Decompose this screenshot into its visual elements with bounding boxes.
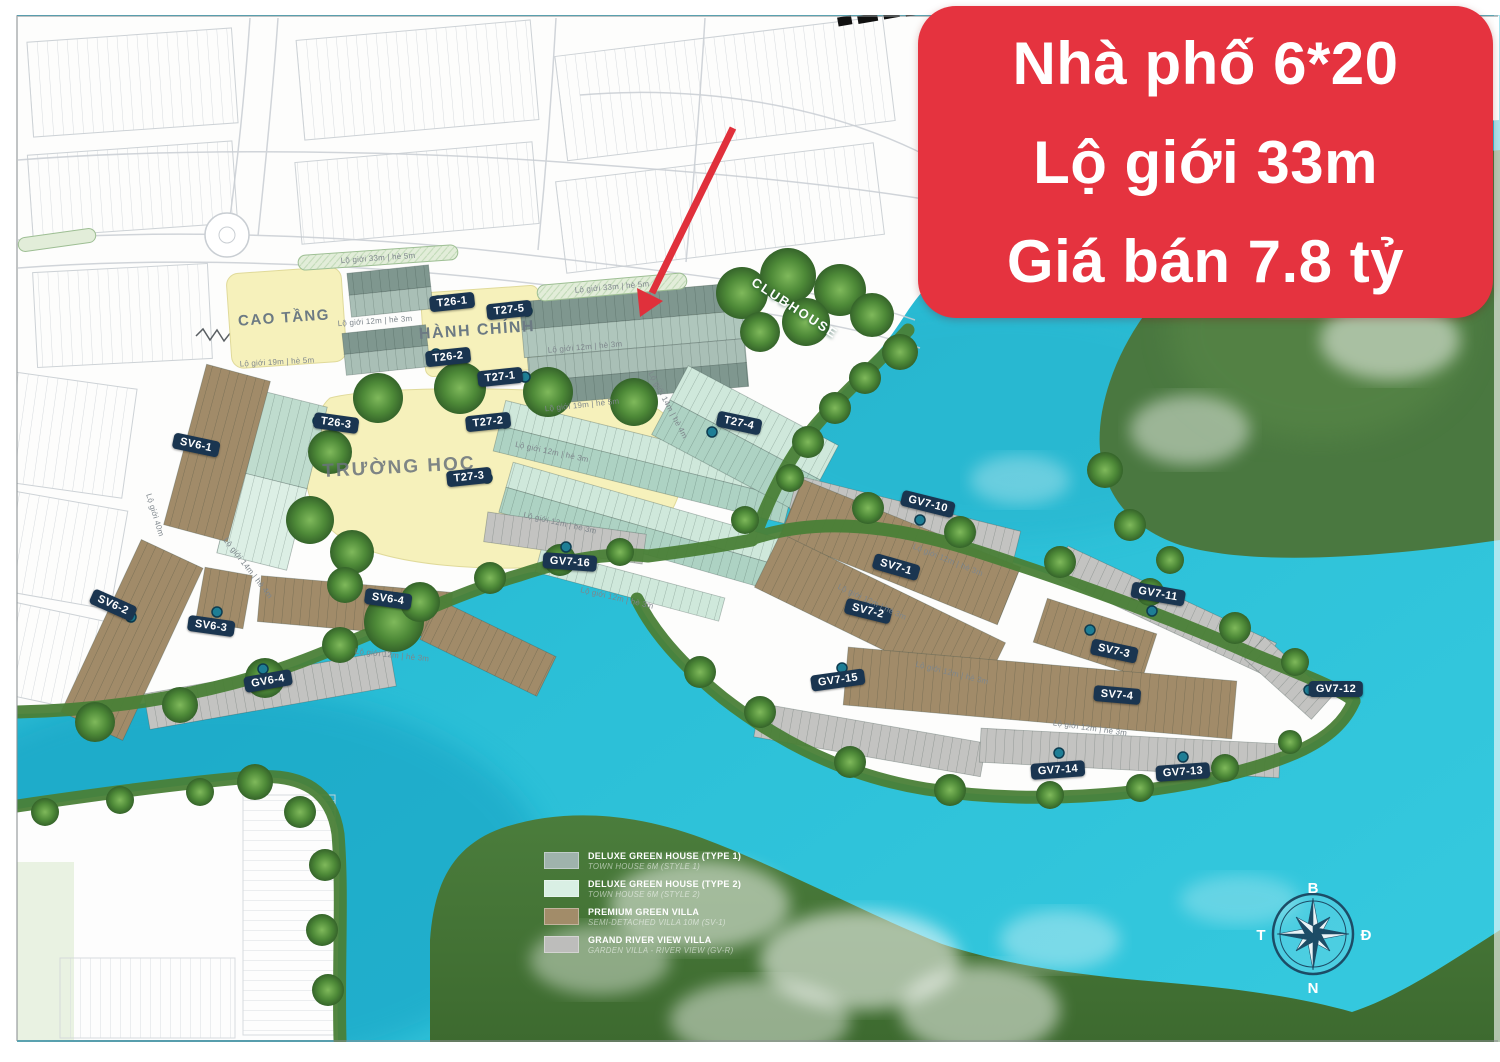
banner-line-house-size: Nhà phố 6*20: [918, 14, 1493, 113]
tree: [1126, 774, 1154, 802]
legend-title: GRAND RIVER VIEW VILLA: [588, 935, 712, 945]
tree: [1219, 612, 1251, 644]
tree: [744, 696, 776, 728]
tree: [850, 293, 894, 337]
label-marker-dot: [707, 427, 717, 437]
tree: [474, 562, 506, 594]
legend-swatch-type2: [544, 880, 579, 897]
compass-east-label: Đ: [1361, 927, 1372, 944]
promo-banner: Nhà phố 6*20 Lộ giới 33m Giá bán 7.8 tỷ: [918, 6, 1493, 318]
tree: [309, 849, 341, 881]
tree: [944, 516, 976, 548]
masterplan-image: B Đ N T CAO TẦNG HÀNH CHÍNH TRƯỜNG HỌC C…: [0, 0, 1500, 1062]
tree: [434, 362, 486, 414]
tree: [327, 567, 363, 603]
tree: [606, 538, 634, 566]
tree: [353, 373, 403, 423]
legend-swatch-type1: [544, 852, 579, 869]
compass-north-label: B: [1308, 880, 1319, 897]
tree: [819, 392, 851, 424]
tree: [31, 798, 59, 826]
tree: [286, 496, 334, 544]
tree: [882, 334, 918, 370]
legend-title: DELUXE GREEN HOUSE (TYPE 1): [588, 851, 741, 861]
faded-block: [27, 28, 238, 137]
tree: [1156, 546, 1184, 574]
legend-subtitle: TOWN HOUSE 6M (STYLE 1): [588, 862, 700, 871]
roundabout: [205, 213, 249, 257]
label-marker-dot: [212, 607, 222, 617]
tree: [934, 774, 966, 806]
tree: [330, 530, 374, 574]
tree: [1114, 509, 1146, 541]
tree: [740, 312, 780, 352]
legend-swatch-grand-villa: [544, 936, 579, 953]
cloud: [970, 455, 1070, 505]
tree: [776, 464, 804, 492]
compass-west-label: T: [1256, 927, 1265, 944]
label-marker-dot: [561, 542, 571, 552]
legend-swatch-premium-villa: [544, 908, 579, 925]
block-tag-gv7-12: GV7-12: [1309, 681, 1363, 697]
tree: [1036, 781, 1064, 809]
legend-row: GRAND RIVER VIEW VILLA GARDEN VILLA - RI…: [544, 935, 874, 961]
faded-block: [27, 141, 237, 237]
banner-line-road-width: Lộ giới 33m: [918, 113, 1493, 212]
legend-row: DELUXE GREEN HOUSE (TYPE 1) TOWN HOUSE 6…: [544, 851, 874, 877]
faded-block: [296, 20, 539, 140]
lot-row: [347, 265, 433, 317]
tree: [731, 506, 759, 534]
cloud: [1130, 395, 1250, 465]
tree: [237, 764, 273, 800]
label-marker-dot: [1054, 748, 1064, 758]
label-marker-dot: [1085, 625, 1095, 635]
tree: [284, 796, 316, 828]
legend-subtitle: SEMI-DETACHED VILLA 10M (SV-1): [588, 918, 726, 927]
tree: [162, 687, 198, 723]
tree: [792, 426, 824, 458]
tree: [834, 746, 866, 778]
page-margin: [0, 1042, 1500, 1062]
tree: [322, 627, 358, 663]
tree: [312, 974, 344, 1006]
tree: [75, 702, 115, 742]
tree: [852, 492, 884, 524]
tree: [1044, 546, 1076, 578]
label-marker-dot: [1178, 752, 1188, 762]
future-phase-lots: [60, 958, 235, 1038]
tree: [849, 362, 881, 394]
label-marker-dot: [915, 515, 925, 525]
legend-title: DELUXE GREEN HOUSE (TYPE 2): [588, 879, 741, 889]
tree: [306, 914, 338, 946]
compass-south-label: N: [1308, 980, 1319, 997]
tree: [1211, 754, 1239, 782]
legend-row: DELUXE GREEN HOUSE (TYPE 2) TOWN HOUSE 6…: [544, 879, 874, 905]
banner-line-price: Giá bán 7.8 tỷ: [918, 212, 1493, 311]
tree: [186, 778, 214, 806]
lot-row: [342, 325, 430, 376]
page-margin: [1494, 0, 1500, 1062]
legend-subtitle: TOWN HOUSE 6M (STYLE 2): [588, 890, 700, 899]
tree: [106, 786, 134, 814]
tree: [1281, 648, 1309, 676]
cloud: [1000, 910, 1120, 970]
faded-block: [0, 372, 137, 498]
legend-title: PREMIUM GREEN VILLA: [588, 907, 699, 917]
faded-block: [0, 490, 128, 609]
tree: [684, 656, 716, 688]
legend-row: PREMIUM GREEN VILLA SEMI-DETACHED VILLA …: [544, 907, 874, 933]
tree: [1278, 730, 1302, 754]
label-marker-dot: [1147, 606, 1157, 616]
faded-block: [33, 263, 213, 367]
page-margin: [0, 0, 17, 1062]
tree: [1087, 452, 1123, 488]
legend-subtitle: GARDEN VILLA - RIVER VIEW (GV-R): [588, 946, 734, 955]
